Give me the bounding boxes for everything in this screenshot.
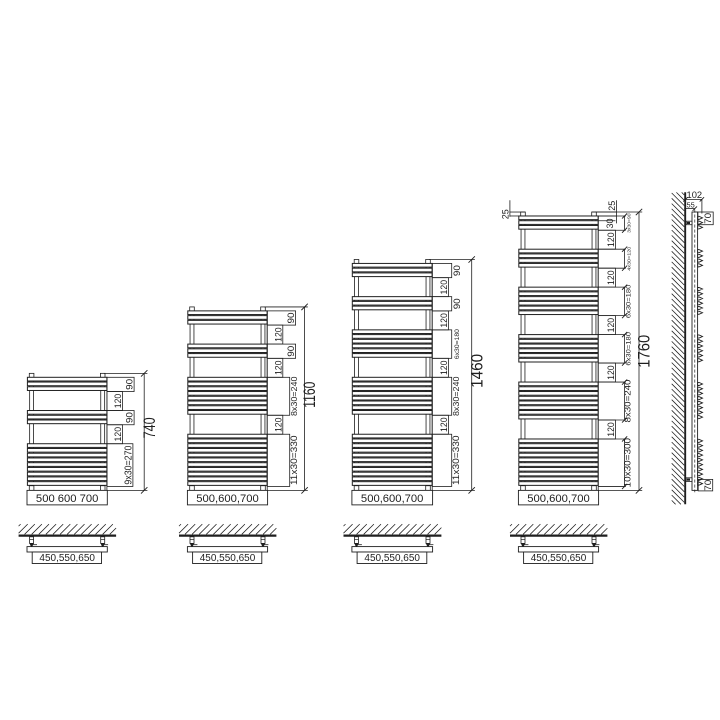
svg-text:120: 120 xyxy=(439,417,450,432)
svg-text:6x30=180: 6x30=180 xyxy=(626,284,633,318)
svg-text:90: 90 xyxy=(286,313,297,324)
svg-text:90: 90 xyxy=(125,379,136,390)
svg-text:120: 120 xyxy=(439,280,450,295)
svg-text:120: 120 xyxy=(606,318,617,333)
svg-text:1160: 1160 xyxy=(301,382,319,408)
svg-text:450,550,650: 450,550,650 xyxy=(39,553,95,564)
svg-text:500,600,700: 500,600,700 xyxy=(361,493,424,505)
svg-text:1460: 1460 xyxy=(468,354,486,388)
svg-text:120: 120 xyxy=(439,361,450,376)
svg-text:6x30=180: 6x30=180 xyxy=(454,328,461,359)
svg-text:120: 120 xyxy=(113,394,124,409)
svg-text:120: 120 xyxy=(606,270,617,285)
svg-text:25: 25 xyxy=(500,209,510,219)
svg-text:740: 740 xyxy=(141,417,159,438)
svg-text:500 600 700: 500 600 700 xyxy=(36,493,99,505)
svg-text:120: 120 xyxy=(606,232,617,247)
svg-text:1760: 1760 xyxy=(636,335,654,368)
svg-text:120: 120 xyxy=(606,422,617,437)
svg-text:30: 30 xyxy=(605,219,615,229)
svg-text:500,600,700: 500,600,700 xyxy=(196,493,259,505)
svg-text:9x30=270: 9x30=270 xyxy=(124,445,135,484)
svg-text:120: 120 xyxy=(273,361,284,376)
svg-text:8x30=240: 8x30=240 xyxy=(452,376,461,416)
svg-text:90: 90 xyxy=(125,412,136,423)
svg-text:70: 70 xyxy=(703,480,714,491)
svg-text:10x30=300: 10x30=300 xyxy=(623,438,633,488)
svg-text:120: 120 xyxy=(606,365,617,380)
svg-text:11x30=330: 11x30=330 xyxy=(451,435,461,485)
svg-text:8x30=240: 8x30=240 xyxy=(623,379,633,422)
svg-text:4x30=120: 4x30=120 xyxy=(627,246,633,270)
svg-text:3x30=90: 3x30=90 xyxy=(627,213,632,233)
svg-text:90: 90 xyxy=(452,265,463,276)
svg-text:8x30=240: 8x30=240 xyxy=(290,376,299,416)
svg-text:25: 25 xyxy=(607,201,617,211)
svg-text:6x30=180: 6x30=180 xyxy=(626,332,633,366)
svg-text:120: 120 xyxy=(273,418,284,433)
svg-text:450,550,650: 450,550,650 xyxy=(531,553,587,564)
svg-text:500,600,700: 500,600,700 xyxy=(527,493,590,505)
svg-text:120: 120 xyxy=(439,313,450,328)
svg-text:70: 70 xyxy=(703,213,714,224)
svg-text:55: 55 xyxy=(687,200,695,209)
svg-text:120: 120 xyxy=(273,327,284,342)
svg-text:11x30=330: 11x30=330 xyxy=(289,435,299,485)
svg-text:120: 120 xyxy=(113,427,124,442)
svg-text:450,550,650: 450,550,650 xyxy=(200,553,256,564)
svg-text:450,550,650: 450,550,650 xyxy=(364,553,420,564)
svg-text:90: 90 xyxy=(286,346,297,357)
svg-text:90: 90 xyxy=(452,298,463,309)
